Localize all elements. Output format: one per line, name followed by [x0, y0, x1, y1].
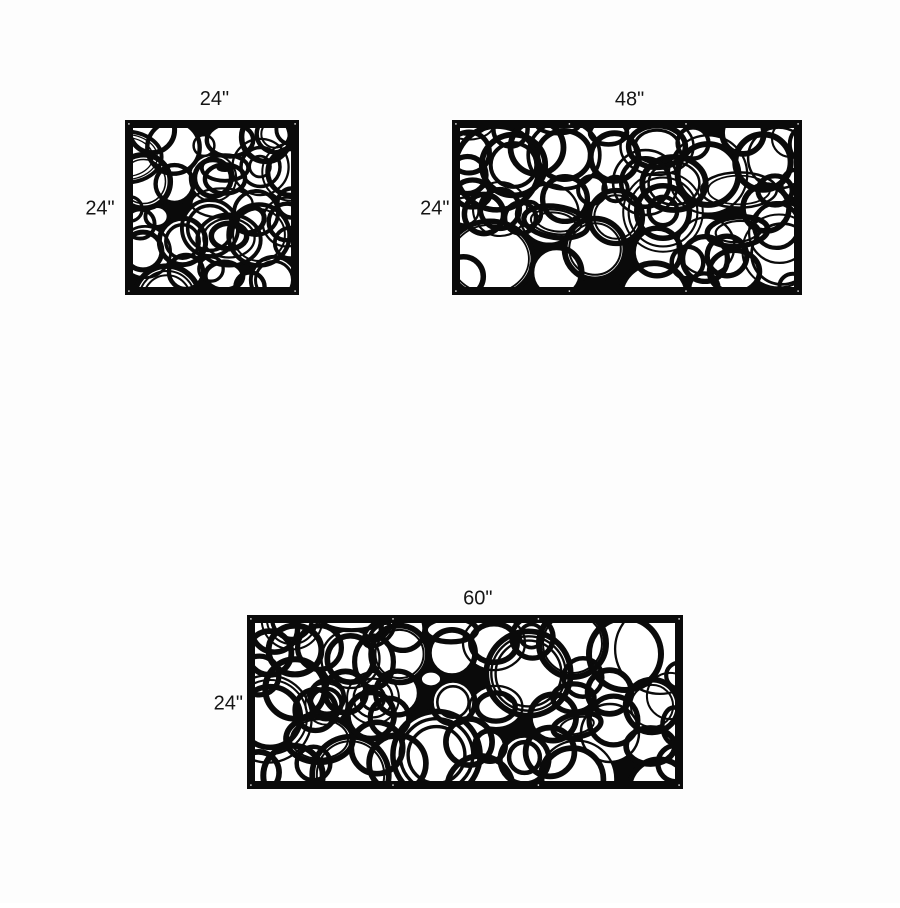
- svg-text:24": 24": [420, 198, 449, 220]
- svg-text:24": 24": [85, 198, 114, 220]
- svg-text:60": 60": [463, 587, 492, 609]
- svg-text:24": 24": [200, 88, 229, 110]
- svg-text:24": 24": [214, 693, 243, 715]
- svg-text:48": 48": [615, 88, 644, 110]
